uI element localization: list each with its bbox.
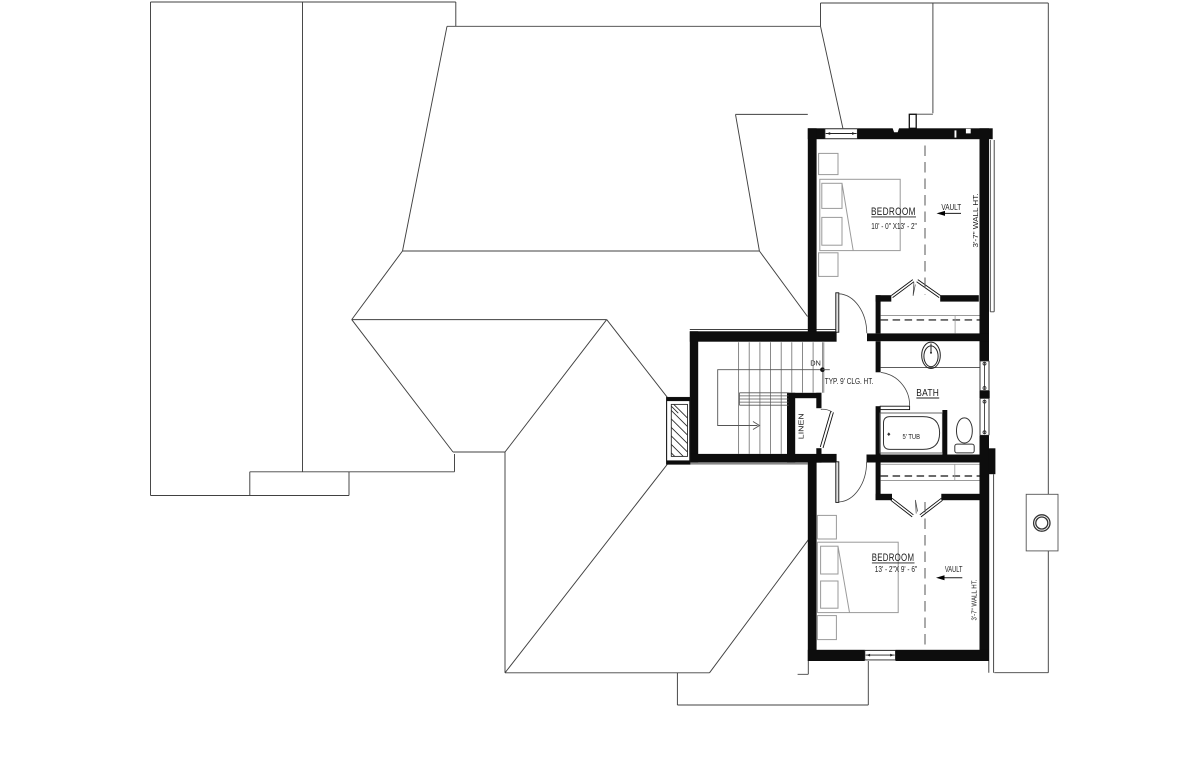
svg-text:BEDROOM: BEDROOM	[871, 206, 916, 218]
svg-text:13' - 2"X 9' - 6": 13' - 2"X 9' - 6"	[875, 565, 917, 574]
svg-text:VAULT: VAULT	[941, 203, 961, 212]
svg-text:LINEN: LINEN	[797, 413, 806, 439]
svg-text:10' - 0" X13' - 2": 10' - 0" X13' - 2"	[871, 222, 917, 231]
svg-text:5' TUB: 5' TUB	[903, 434, 921, 441]
svg-text:3'-7" WALL HT.: 3'-7" WALL HT.	[970, 580, 979, 621]
svg-text:3'-7" WALL HT.: 3'-7" WALL HT.	[971, 194, 980, 248]
svg-text:DN: DN	[810, 359, 821, 368]
svg-text:BEDROOM: BEDROOM	[872, 552, 915, 564]
svg-text:BATH: BATH	[916, 388, 939, 399]
svg-text:VAULT: VAULT	[945, 565, 963, 574]
svg-text:TYP. 9' CLG. HT.: TYP. 9' CLG. HT.	[825, 377, 874, 386]
